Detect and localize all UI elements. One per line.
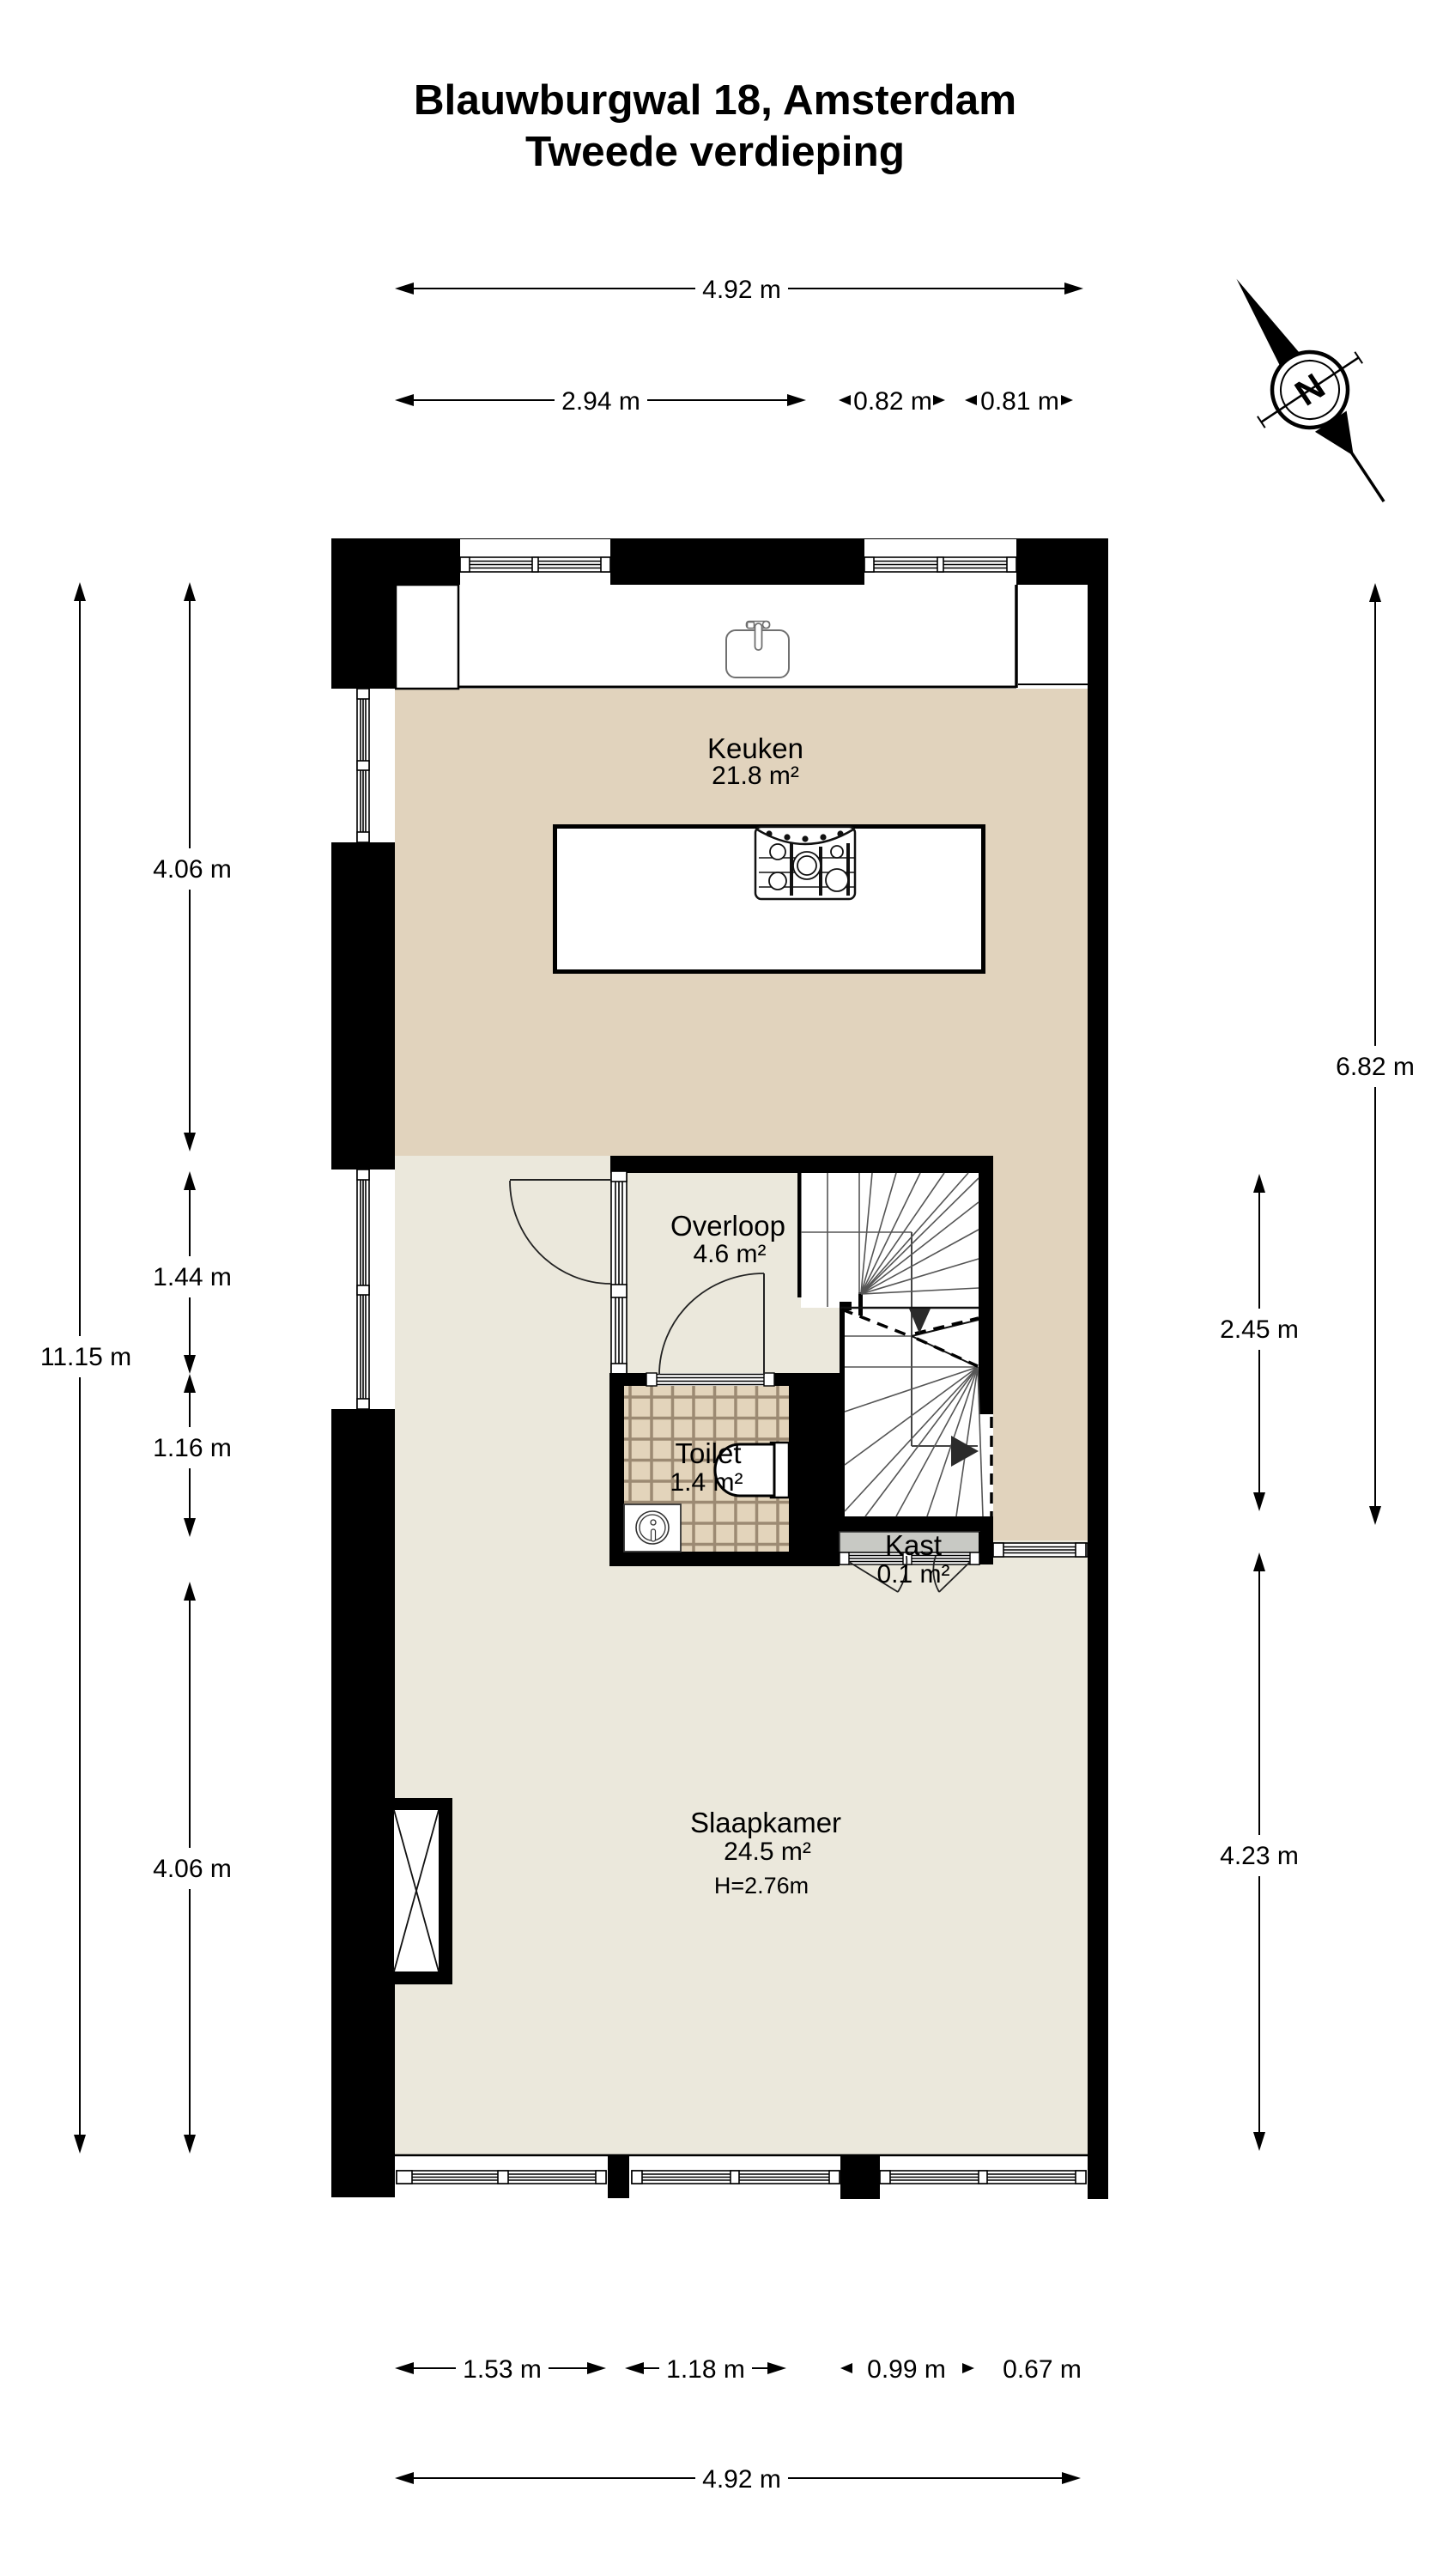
svg-text:Blauwburgwal 18, Amsterdam: Blauwburgwal 18, Amsterdam [414, 76, 1016, 124]
svg-text:2.94 m: 2.94 m [561, 387, 640, 416]
svg-text:1.18 m: 1.18 m [666, 2355, 745, 2384]
svg-text:1.16 m: 1.16 m [153, 1434, 232, 1462]
svg-text:4.6 m²: 4.6 m² [693, 1240, 766, 1268]
svg-text:4.06 m: 4.06 m [153, 1855, 232, 1883]
svg-text:0.67 m: 0.67 m [1003, 2355, 1082, 2384]
svg-text:Keuken: Keuken [707, 732, 803, 764]
svg-text:4.06 m: 4.06 m [153, 855, 232, 884]
svg-text:2.45 m: 2.45 m [1220, 1315, 1299, 1344]
svg-text:1.44 m: 1.44 m [153, 1263, 232, 1291]
svg-text:4.92 m: 4.92 m [702, 2465, 781, 2494]
svg-text:1.4 m²: 1.4 m² [670, 1468, 743, 1497]
svg-text:1.53 m: 1.53 m [463, 2355, 542, 2384]
svg-text:11.15 m: 11.15 m [40, 1343, 131, 1371]
svg-text:4.23 m: 4.23 m [1220, 1842, 1299, 1870]
svg-text:4.92 m: 4.92 m [702, 276, 781, 304]
svg-text:H=2.76m: H=2.76m [714, 1873, 809, 1899]
svg-text:21.8 m²: 21.8 m² [712, 762, 799, 790]
svg-text:0.1 m²: 0.1 m² [876, 1560, 949, 1589]
svg-text:Slaapkamer: Slaapkamer [690, 1807, 841, 1838]
svg-text:Overloop: Overloop [670, 1210, 785, 1242]
svg-text:Toilet: Toilet [675, 1437, 741, 1469]
svg-text:0.82 m: 0.82 m [853, 387, 932, 416]
svg-text:Tweede verdieping: Tweede verdieping [525, 128, 905, 175]
svg-text:24.5 m²: 24.5 m² [724, 1838, 811, 1866]
svg-text:0.99 m: 0.99 m [867, 2355, 946, 2384]
svg-text:0.81 m: 0.81 m [980, 387, 1059, 416]
svg-text:6.82 m: 6.82 m [1336, 1053, 1415, 1081]
svg-text:Kast: Kast [885, 1529, 942, 1561]
